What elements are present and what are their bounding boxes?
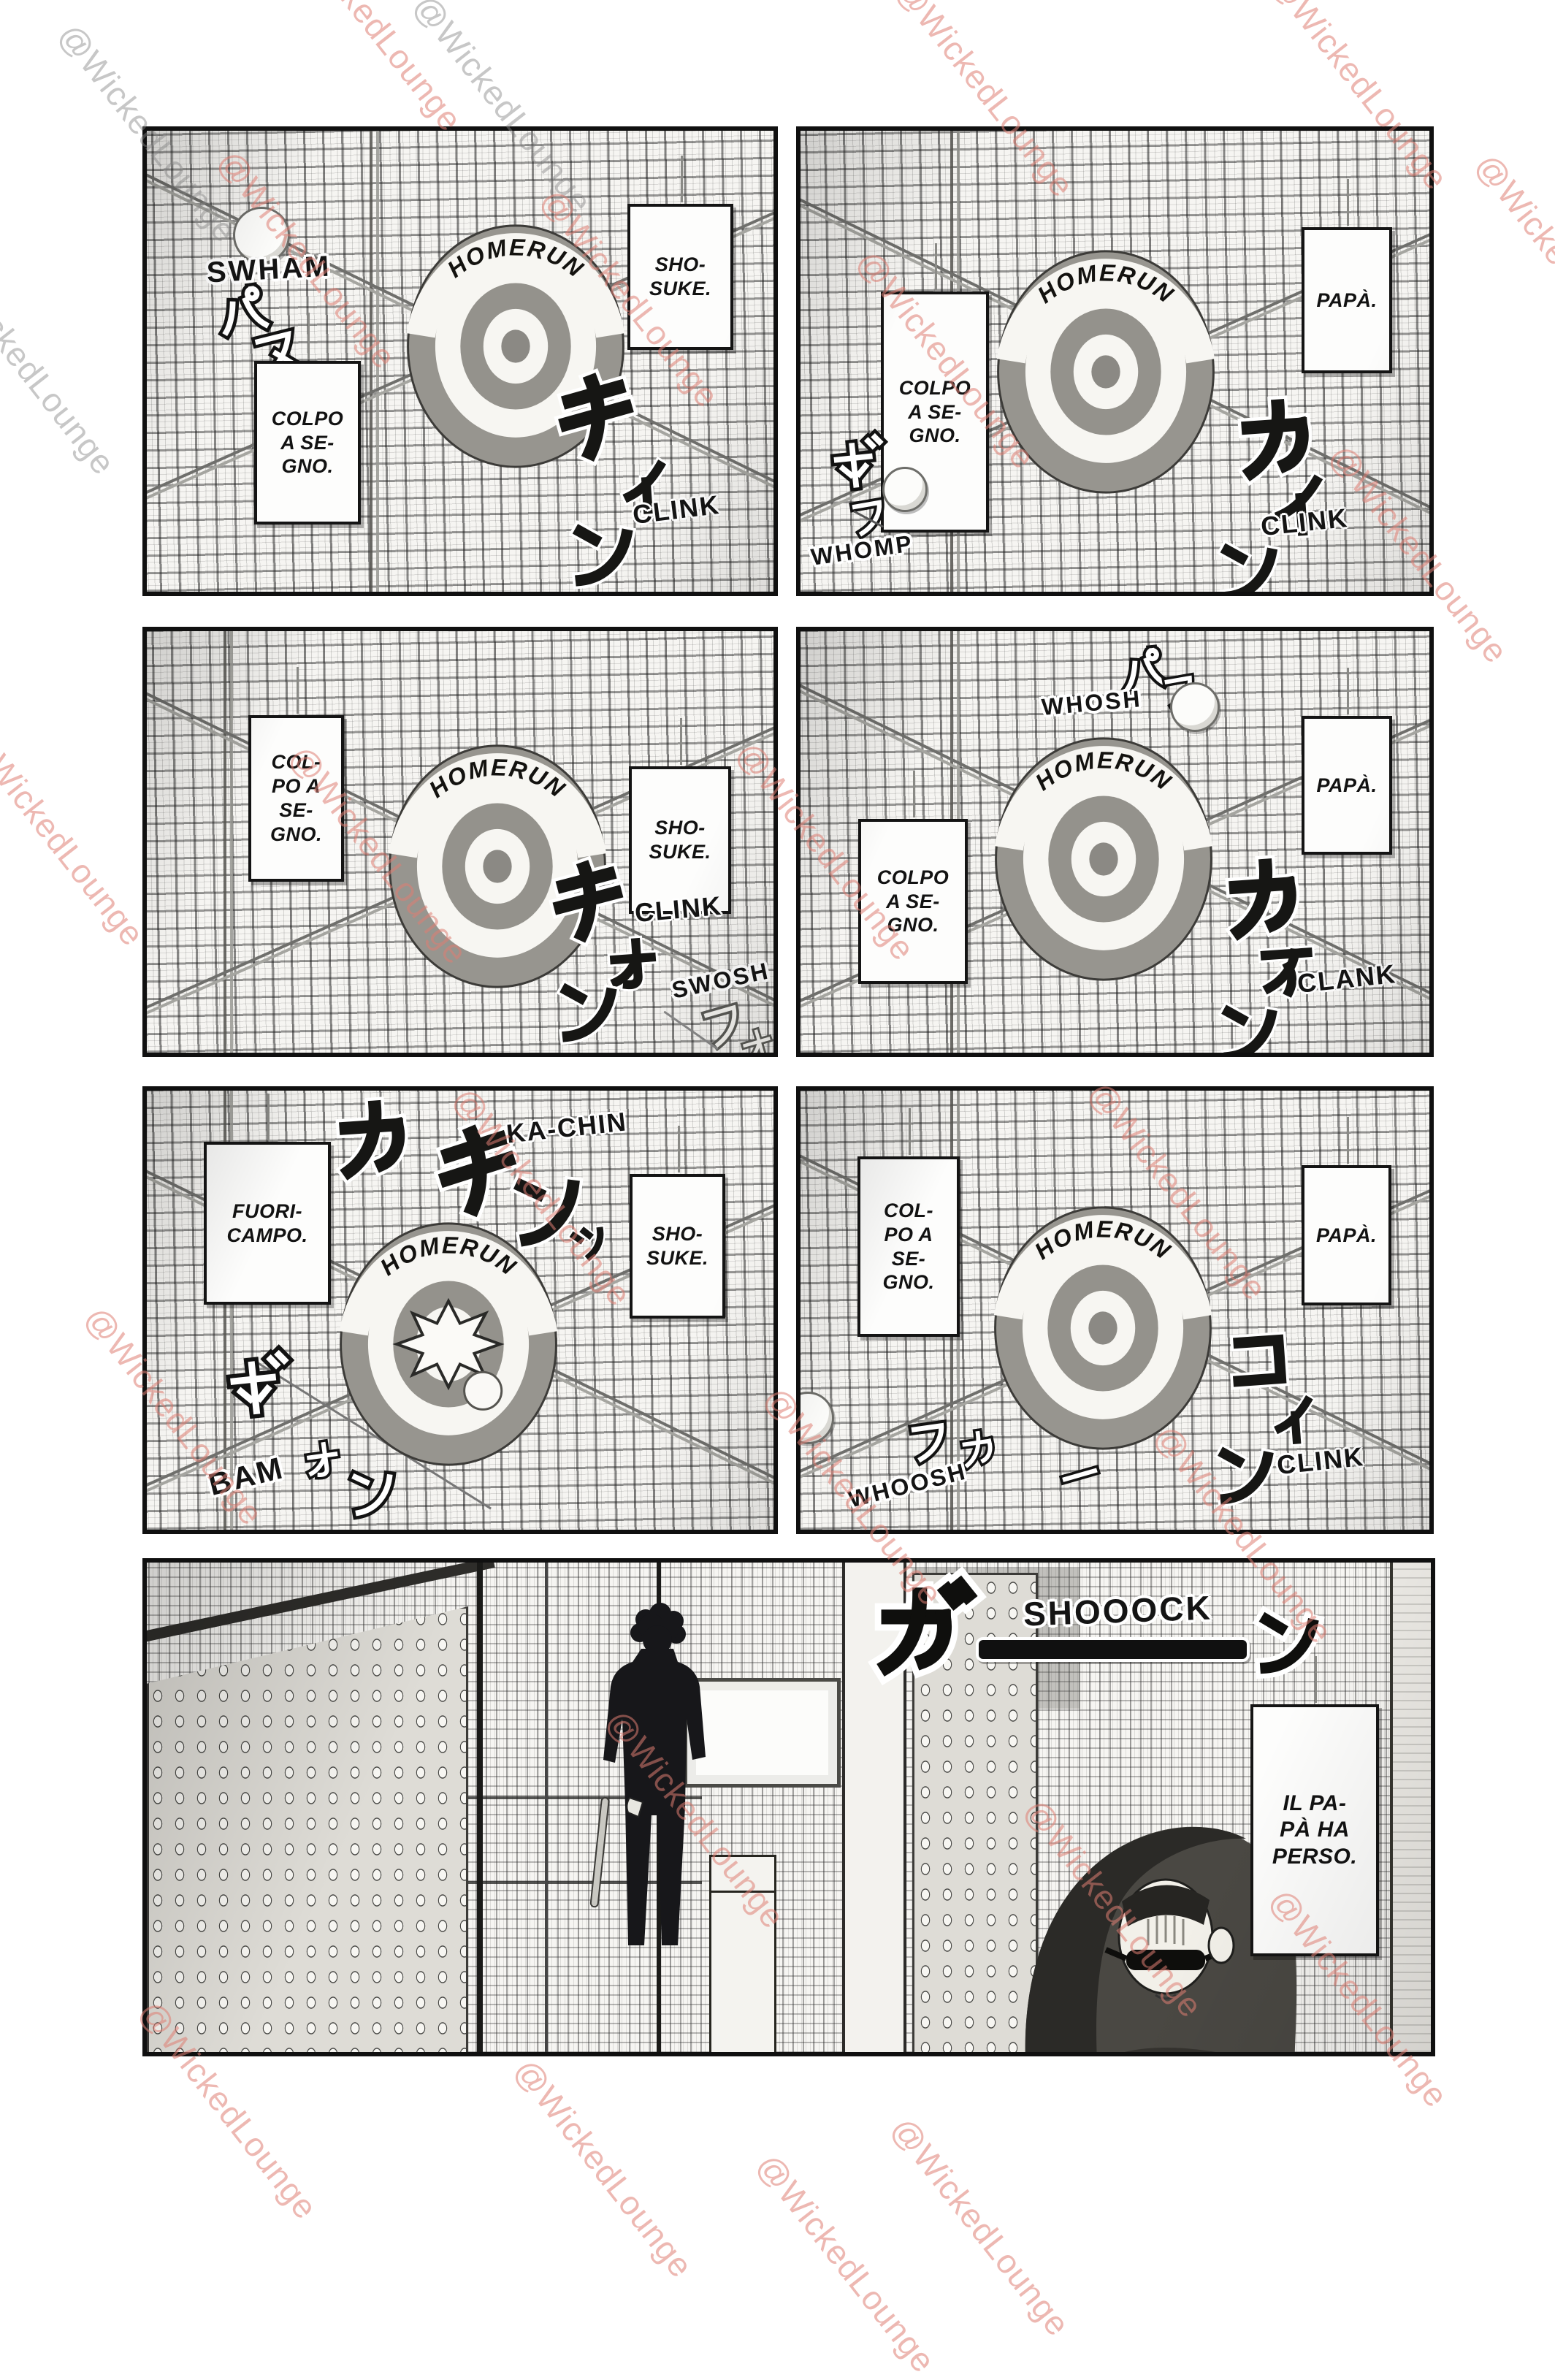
sfx-kana <box>1212 533 1291 596</box>
speech-box-left: COL- PO A SE- GNO. <box>248 715 344 882</box>
speech-box-right: PAPÀ. <box>1302 227 1392 373</box>
net-post-line <box>223 631 226 1053</box>
sfx-kana <box>1210 1436 1286 1507</box>
panel-6: HOMERUN COL- PO A SE- GNO. PAPÀ. CLINK W… <box>796 1086 1434 1534</box>
watermark: @WickedLounge <box>0 248 123 482</box>
speech-box-left: COLPO A SE- GNO. <box>254 361 361 525</box>
sfx-kana <box>1224 1322 1298 1396</box>
homerun-target: HOMERUN <box>333 1218 564 1470</box>
speech-box-right: SHO- SUKE. <box>627 204 733 350</box>
watermark: @WickedLounge <box>0 720 153 953</box>
panel-7: SHOOOCK IL PA- PÀ HA PERSO. <box>142 1558 1435 2056</box>
speech-box-right: SHO- SUKE. <box>630 1174 725 1319</box>
sfx-kana <box>332 1094 420 1181</box>
watermark: @WickedLounge <box>506 2051 701 2285</box>
hand <box>1209 1928 1234 1963</box>
sfx-kana <box>904 1412 957 1465</box>
sfx-kana <box>301 1435 347 1481</box>
panel-3: HOMERUN COL- PO A SE- GNO. SHO- SUKE. CL… <box>142 627 778 1057</box>
homerun-target: HOMERUN <box>987 1202 1218 1454</box>
net-post-line <box>370 131 372 592</box>
speech-box-left: COL- PO A SE- GNO. <box>857 1156 960 1337</box>
sfx-kana <box>1234 392 1324 482</box>
sfx-kana <box>828 435 886 492</box>
sfx-kana <box>548 367 644 464</box>
sfx-shooock: SHOOOCK <box>1023 1588 1212 1634</box>
watermark: @WickedLounge <box>749 2146 944 2380</box>
perforated-board <box>147 1606 468 2056</box>
sfx-dash <box>976 1637 1250 1662</box>
panel-5: HOMERUN KA-CHIN FUORI- CAMPO. SHO- SUKE.… <box>142 1086 778 1534</box>
sfx-kana <box>553 972 629 1045</box>
speech-box-right: PAPÀ. <box>1302 1165 1391 1305</box>
standing-figure <box>559 1579 727 2056</box>
watermark: @WickedLounge <box>1467 146 1555 380</box>
speech-box-left: COLPO A SE- GNO. <box>858 819 968 984</box>
bat <box>590 1797 609 1907</box>
speech-box-right: PAPÀ. <box>1302 716 1392 855</box>
sfx-kana <box>224 1352 292 1420</box>
manga-page: { "watermark": { "text": "@WickedLounge"… <box>0 0 1555 2192</box>
sfx-kana <box>1214 994 1290 1057</box>
sfx-kana <box>344 1460 405 1519</box>
homerun-target: HOMERUN <box>990 246 1221 497</box>
homerun-target: HOMERUN <box>988 733 1219 985</box>
sfx-kana <box>565 1217 616 1267</box>
watermark: @WickedLounge <box>883 2110 1078 2343</box>
baseball <box>465 1372 502 1409</box>
sfx-kana <box>876 1583 969 1677</box>
baseball <box>1170 682 1220 732</box>
watermark: @WickedLounge <box>275 0 470 139</box>
panel-1: HOMERUN SWHAM COLPO A SE- GNO. SHO- SUKE… <box>142 126 778 596</box>
sfx-swham: SWHAM <box>206 251 332 290</box>
speech-box-left: FUORI- CAMPO. <box>204 1142 331 1305</box>
panel-2: HOMERUN COLPO A SE- GNO. PAPÀ. CLINK WHO… <box>796 126 1434 596</box>
sunglasses <box>1126 1950 1205 1970</box>
speech-box-right: IL PA- PÀ HA PERSO. <box>1250 1704 1379 1956</box>
frame-post <box>545 1563 548 2052</box>
panel-4: HOMERUN WHOSH COLPO A SE- GNO. PAPÀ. CLA… <box>796 627 1434 1057</box>
frame-post <box>477 1563 483 2052</box>
sfx-kana <box>1222 852 1312 942</box>
side-wall <box>1390 1563 1435 2056</box>
sfx-kana <box>543 855 632 944</box>
baseball <box>882 467 928 512</box>
